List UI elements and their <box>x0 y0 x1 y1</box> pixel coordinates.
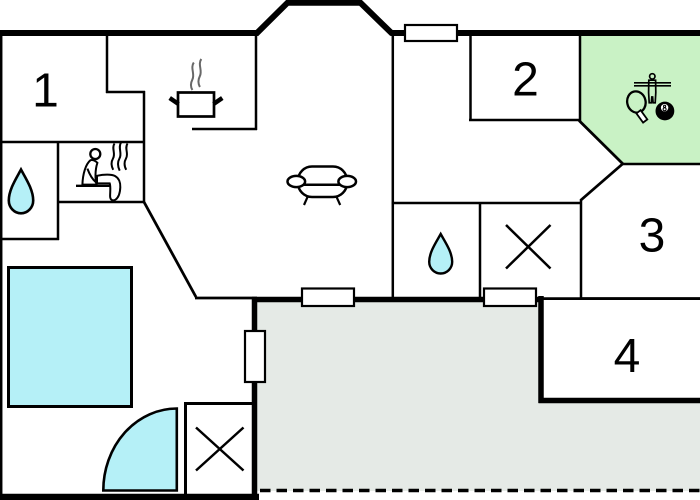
svg-text:1: 1 <box>32 64 59 117</box>
svg-text:2: 2 <box>512 53 539 106</box>
svg-text:4: 4 <box>614 330 641 383</box>
svg-text:3: 3 <box>639 209 666 262</box>
